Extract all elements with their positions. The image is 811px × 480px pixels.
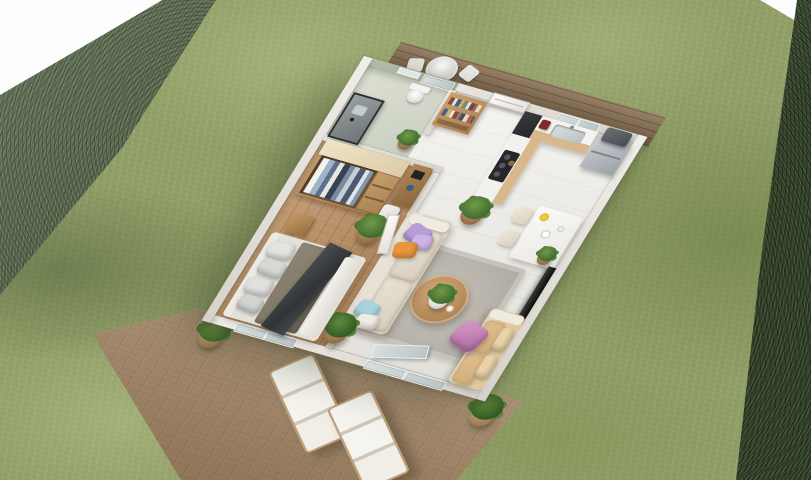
burner — [498, 162, 507, 169]
orange-pillow — [391, 242, 419, 259]
pot-on-stove — [507, 160, 516, 167]
bowl — [556, 225, 566, 233]
burner — [492, 171, 501, 178]
coffee-table-plant — [418, 280, 463, 314]
laptop — [410, 170, 425, 181]
fridge-seam — [591, 150, 621, 160]
drawer-seam — [364, 196, 384, 203]
sink-basin — [349, 103, 369, 117]
plate — [538, 229, 553, 240]
open-sliding-door-leaf — [371, 344, 430, 359]
faucet — [349, 117, 355, 122]
entry-door-seam — [495, 98, 524, 107]
coffee-machine — [538, 119, 552, 130]
door-mullion — [402, 371, 408, 378]
bistro-chair — [457, 64, 480, 83]
desk-accessory — [405, 184, 415, 192]
kitchen-sink — [549, 124, 587, 145]
yellow-flowers — [538, 212, 551, 222]
render-canvas — [0, 0, 811, 480]
window-mullion — [263, 331, 269, 338]
drawer-seam — [372, 184, 392, 191]
